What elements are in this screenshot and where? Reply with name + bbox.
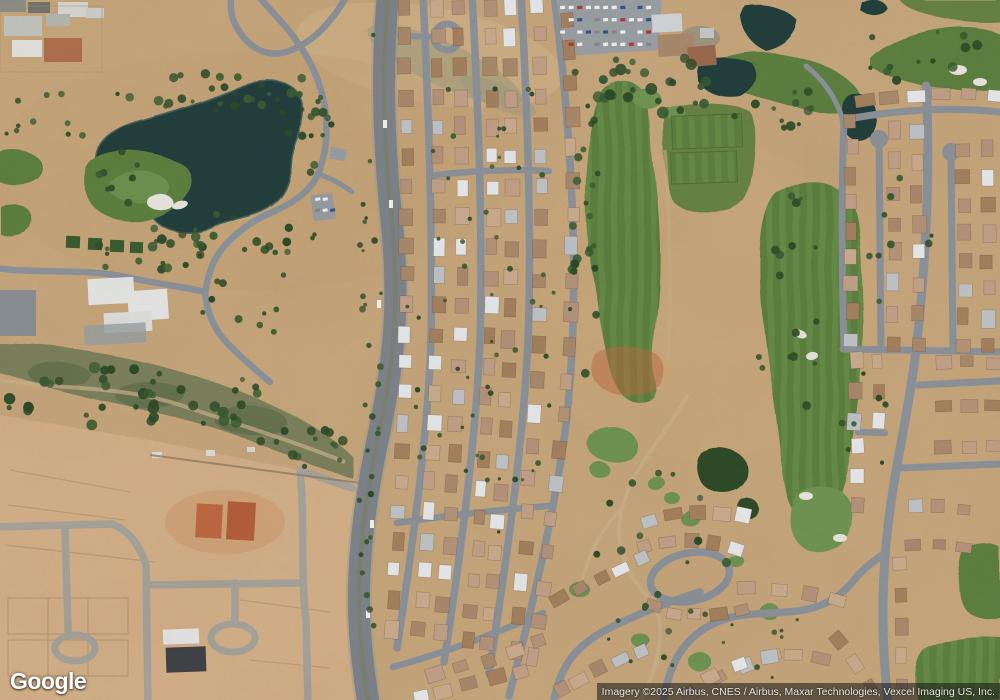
google-logo[interactable]: Google <box>10 668 86 695</box>
satellite-canvas <box>0 0 1000 700</box>
attribution-bar: Imagery ©2025 Airbus, CNES / Airbus, Max… <box>597 683 1000 700</box>
attribution-text: Imagery ©2025 Airbus, CNES / Airbus, Max… <box>602 686 995 698</box>
image-grain <box>0 0 1000 700</box>
map-viewport[interactable]: Google Imagery ©2025 Airbus, CNES / Airb… <box>0 0 1000 700</box>
